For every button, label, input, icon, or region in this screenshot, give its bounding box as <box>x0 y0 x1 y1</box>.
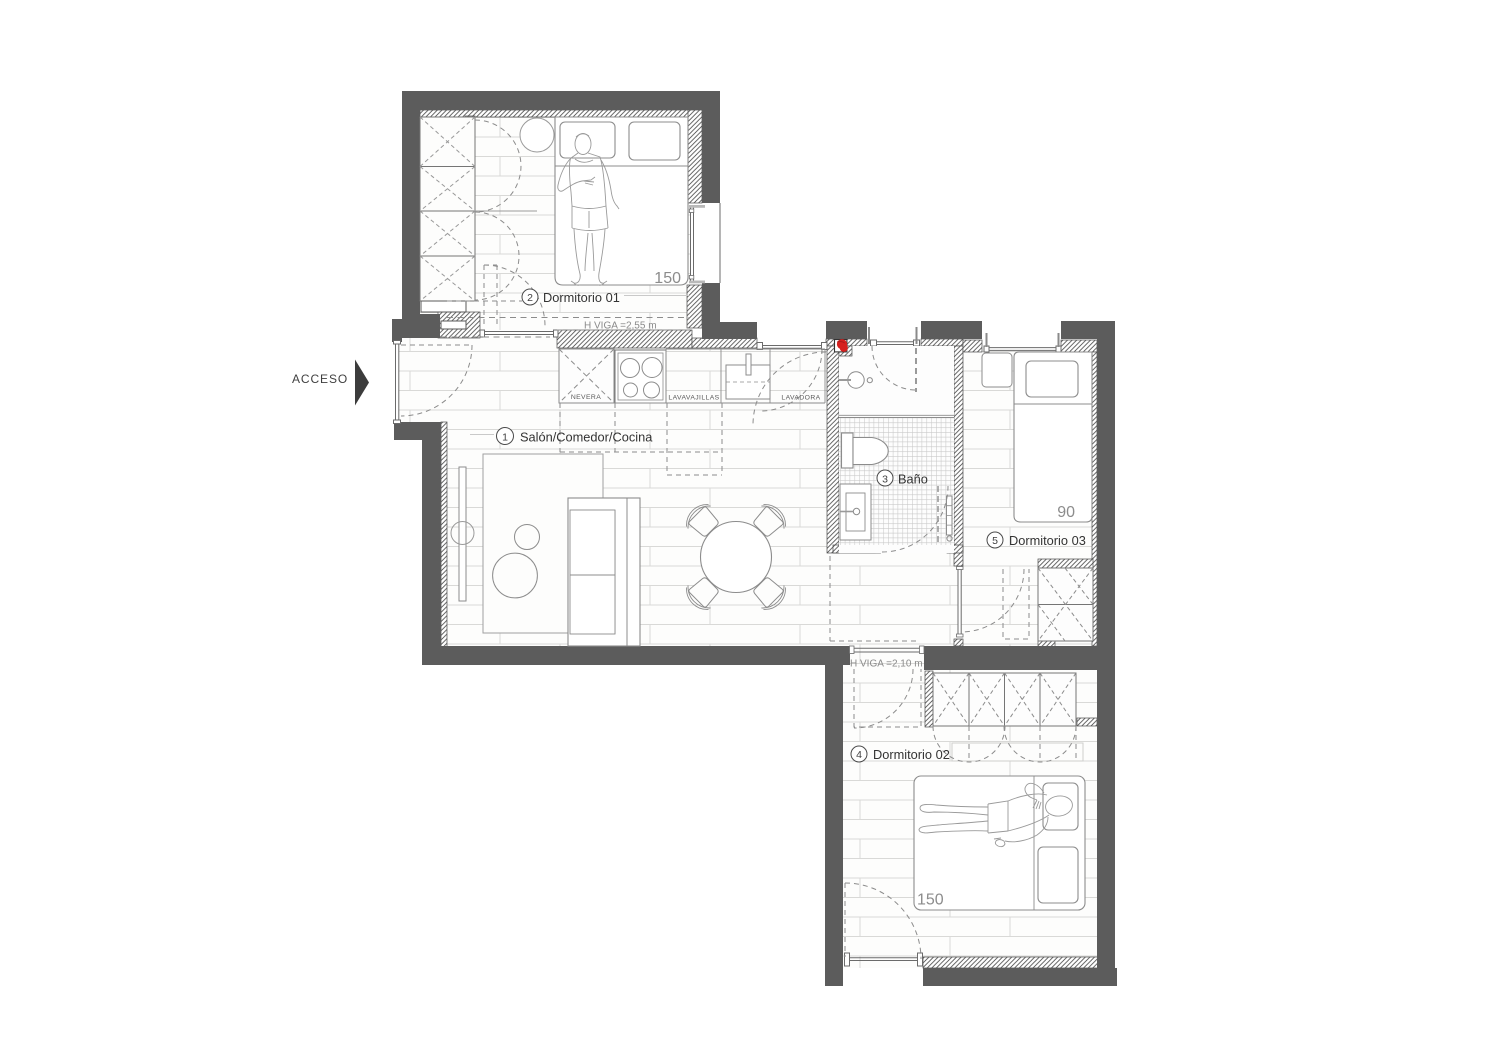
svg-text:H VIGA =2,10 m: H VIGA =2,10 m <box>850 659 923 670</box>
svg-text:Baño: Baño <box>898 472 928 487</box>
svg-text:2: 2 <box>527 292 533 304</box>
svg-text:4: 4 <box>856 749 862 761</box>
svg-text:90: 90 <box>1057 504 1075 521</box>
svg-text:150: 150 <box>654 270 681 287</box>
svg-text:5: 5 <box>992 535 998 547</box>
svg-text:H VIGA =2,55 m: H VIGA =2,55 m <box>584 321 657 332</box>
svg-text:150: 150 <box>917 892 944 909</box>
svg-text:NEVERA: NEVERA <box>571 394 601 401</box>
svg-text:LAVAVAJILLAS: LAVAVAJILLAS <box>668 395 719 402</box>
svg-text:Dormitorio 01: Dormitorio 01 <box>543 290 620 305</box>
svg-text:ACCESO: ACCESO <box>292 372 348 386</box>
svg-text:3: 3 <box>882 473 888 485</box>
svg-text:LAVADORA: LAVADORA <box>781 395 820 402</box>
svg-text:Salón/Comedor/Cocina: Salón/Comedor/Cocina <box>520 430 653 445</box>
svg-text:Dormitorio 03: Dormitorio 03 <box>1009 533 1086 548</box>
svg-text:1: 1 <box>502 432 508 444</box>
svg-text:Dormitorio 02: Dormitorio 02 <box>873 747 950 762</box>
